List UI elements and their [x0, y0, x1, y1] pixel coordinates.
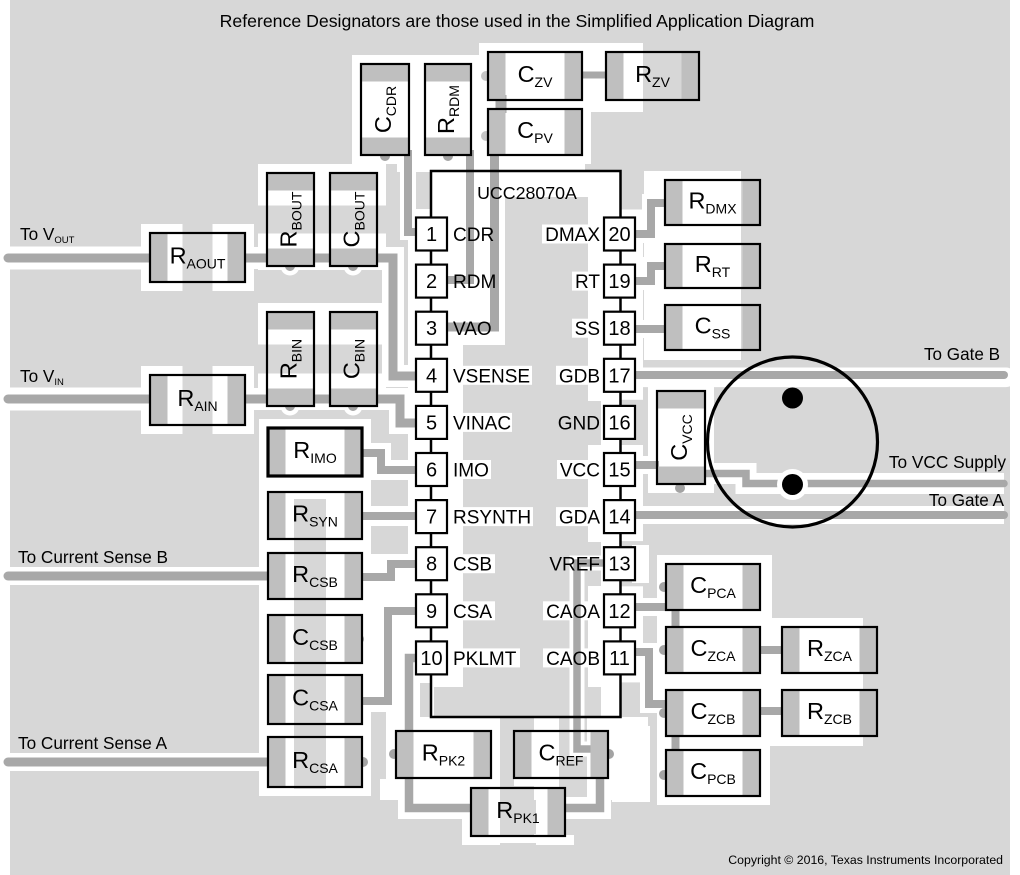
- svg-text:VAO: VAO: [453, 319, 492, 340]
- svg-text:UCC28070A: UCC28070A: [477, 183, 577, 203]
- svg-text:PKLMT: PKLMT: [453, 649, 517, 670]
- svg-text:16: 16: [608, 412, 630, 434]
- svg-text:CDR: CDR: [453, 225, 494, 246]
- svg-text:SS: SS: [575, 319, 600, 340]
- svg-text:VREF: VREF: [549, 555, 600, 576]
- svg-text:GND: GND: [558, 413, 600, 434]
- svg-text:3: 3: [426, 318, 437, 340]
- svg-text:CAOA: CAOA: [546, 602, 600, 623]
- svg-text:1: 1: [426, 224, 437, 246]
- svg-text:12: 12: [608, 601, 630, 623]
- svg-text:Copyright © 2016, Texas Instru: Copyright © 2016, Texas Instruments Inco…: [728, 853, 1003, 867]
- svg-text:To Gate B: To Gate B: [924, 345, 1000, 364]
- svg-text:9: 9: [426, 601, 437, 623]
- svg-text:CAOB: CAOB: [546, 649, 600, 670]
- svg-text:To Current Sense B: To Current Sense B: [18, 547, 168, 567]
- svg-text:DMAX: DMAX: [545, 225, 600, 246]
- svg-text:GDA: GDA: [559, 508, 601, 529]
- svg-text:20: 20: [608, 224, 630, 246]
- svg-text:13: 13: [608, 554, 630, 576]
- svg-text:Reference Designators are thos: Reference Designators are those used in …: [220, 11, 815, 31]
- svg-text:5: 5: [426, 412, 437, 434]
- svg-text:10: 10: [420, 648, 442, 670]
- svg-text:19: 19: [608, 271, 630, 293]
- svg-text:8: 8: [426, 554, 437, 576]
- svg-text:CSB: CSB: [453, 555, 492, 576]
- svg-text:To Gate A: To Gate A: [929, 491, 1005, 510]
- svg-text:RT: RT: [575, 272, 600, 293]
- svg-text:2: 2: [426, 271, 437, 293]
- svg-text:4: 4: [426, 365, 437, 387]
- svg-text:6: 6: [426, 460, 437, 482]
- svg-text:To VCC Supply: To VCC Supply: [889, 452, 1007, 472]
- svg-text:14: 14: [608, 507, 630, 529]
- svg-text:15: 15: [608, 460, 630, 482]
- svg-text:RSYNTH: RSYNTH: [453, 508, 531, 529]
- svg-text:VCC: VCC: [560, 461, 600, 482]
- svg-text:CSA: CSA: [453, 602, 492, 623]
- svg-text:RDM: RDM: [453, 272, 496, 293]
- svg-text:GDB: GDB: [559, 366, 600, 387]
- svg-text:11: 11: [609, 648, 630, 670]
- svg-text:17: 17: [608, 365, 630, 387]
- svg-text:7: 7: [426, 507, 437, 529]
- svg-text:VINAC: VINAC: [453, 413, 511, 434]
- svg-text:18: 18: [608, 318, 630, 340]
- svg-text:IMO: IMO: [453, 461, 489, 482]
- svg-text:To Current Sense A: To Current Sense A: [18, 733, 168, 753]
- svg-text:VSENSE: VSENSE: [453, 366, 530, 387]
